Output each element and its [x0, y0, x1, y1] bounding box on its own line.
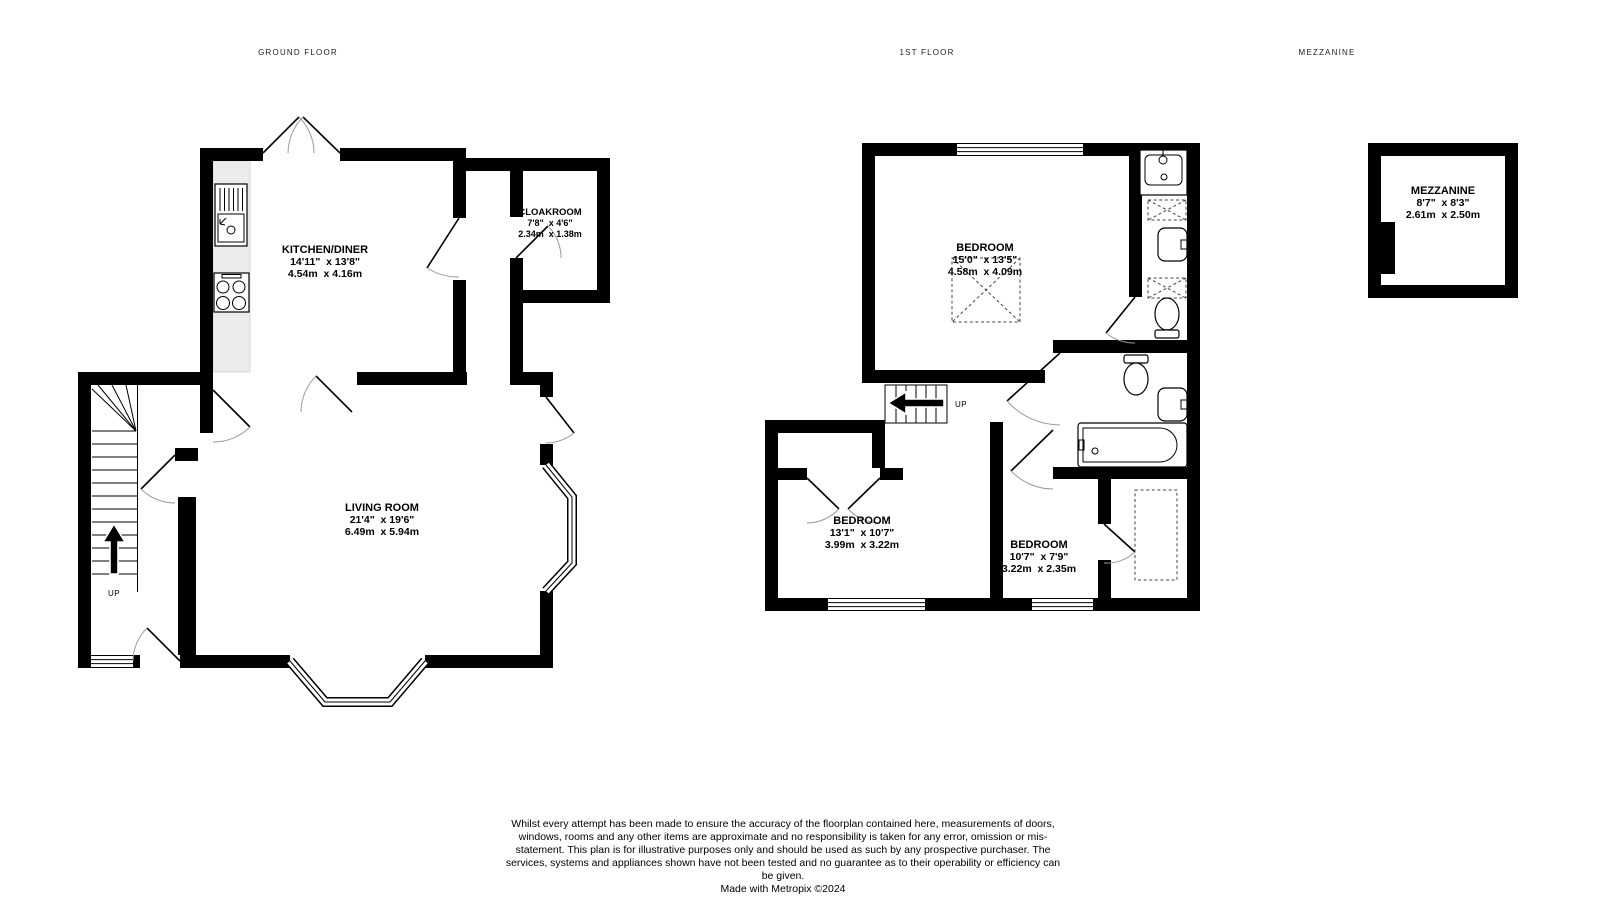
- floorplan-page: GROUND FLOOR: [0, 0, 1600, 912]
- bedroom2-name: BEDROOM: [833, 515, 890, 527]
- living-room-imperial: 21'4" x 19'6": [350, 514, 415, 526]
- kitchen-metric: 4.54m x 4.16m: [288, 268, 362, 280]
- kitchen-living-room-doors: [213, 376, 352, 442]
- kitchen-french-doors: [263, 117, 340, 153]
- bedroom3-metric: 3.22m x 2.35m: [1002, 563, 1076, 575]
- shower-room-door: [1106, 297, 1135, 343]
- living-room-metric: 6.49m x 5.94m: [345, 526, 419, 538]
- stairs-up-label: UP: [108, 589, 120, 598]
- bedroom1-label: BEDROOM 15'0" x 13'5" 4.58m x 4.09m: [948, 242, 1022, 278]
- kitchen-sink-icon: [215, 184, 247, 246]
- bathroom-door: [1007, 353, 1060, 425]
- cloakroom-name: CLOAKROOM: [518, 207, 581, 218]
- bedroom3-window: [1032, 598, 1093, 611]
- mezzanine-title: MEZZANINE: [1298, 48, 1355, 57]
- ground-floor-doors: [133, 117, 574, 661]
- bedroom1-window: [957, 143, 1083, 156]
- living-room-label: LIVING ROOM 21'4" x 19'6" 6.49m x 5.94m: [345, 502, 419, 538]
- bathroom-fixtures: [1078, 355, 1187, 467]
- bedroom1-name: BEDROOM: [956, 242, 1013, 254]
- kitchen-name: KITCHEN/DINER: [282, 244, 368, 256]
- stairs-up-arrow: [103, 524, 125, 574]
- bedroom1-imperial: 15'0" x 13'5": [953, 254, 1018, 266]
- bedroom2-window: [828, 598, 925, 611]
- cupboard-icon: [1148, 200, 1186, 220]
- living-room-bay-window-right: [546, 465, 572, 591]
- bedroom1-metric: 4.58m x 4.09m: [948, 266, 1022, 278]
- cloakroom-label: CLOAKROOM 7'8" x 4'6" 2.34m x 1.38m: [518, 207, 582, 239]
- mezzanine-metric: 2.61m x 2.50m: [1406, 209, 1480, 221]
- floorplan-drawing: GROUND FLOOR: [0, 0, 1600, 912]
- hob-icon: [214, 273, 249, 312]
- bedroom3-label: BEDROOM 10'7" x 7'9" 3.22m x 2.35m: [1002, 539, 1076, 575]
- living-room-stair-hall-door: [141, 455, 175, 503]
- mezzanine-name: MEZZANINE: [1411, 185, 1475, 197]
- shower-room-fixtures: [1140, 150, 1187, 338]
- sink-icon: [1140, 150, 1187, 195]
- ground-floor-title: GROUND FLOOR: [258, 48, 338, 57]
- cloakroom-imperial: 7'8" x 4'6": [527, 218, 572, 228]
- disclaimer: Whilst every attempt has been made to en…: [503, 818, 1063, 895]
- credit-line: Made with Metropix ©2024: [503, 883, 1063, 896]
- living-room-name: LIVING ROOM: [345, 502, 419, 514]
- stairs-up-label-first: UP: [955, 400, 967, 409]
- ground-floor-stairs: UP: [92, 385, 138, 598]
- mezzanine-imperial: 8'7" x 8'3": [1417, 197, 1470, 209]
- basin-icon: [1158, 388, 1187, 421]
- basin-icon: [1158, 228, 1187, 261]
- first-floor-title: 1ST FLOOR: [899, 48, 954, 57]
- living-room-bay-window-bottom: [290, 661, 425, 702]
- hall-window: [91, 655, 133, 668]
- kitchen-imperial: 14'11" x 13'8": [290, 256, 360, 268]
- kitchen-label: KITCHEN/DINER 14'11" x 13'8" 4.54m x 4.1…: [282, 244, 368, 280]
- toilet-icon: [1124, 355, 1148, 395]
- bedroom3-door: [1011, 430, 1053, 489]
- bath-icon: [1078, 423, 1187, 467]
- disclaimer-text: Whilst every attempt has been made to en…: [506, 818, 1060, 882]
- hall-living-room-door: [546, 397, 574, 443]
- bedroom3-imperial: 10'7" x 7'9": [1010, 551, 1069, 563]
- wardrobe-marker: [1135, 490, 1177, 580]
- bedroom2-label: BEDROOM 13'1" x 10'7" 3.99m x 3.22m: [825, 515, 899, 551]
- first-floor-stairs: UP: [885, 385, 967, 423]
- kitchen-hall-door: [427, 218, 459, 277]
- bedroom2-imperial: 13'1" x 10'7": [830, 527, 895, 539]
- bedroom2-metric: 3.99m x 3.22m: [825, 539, 899, 551]
- entrance-door: [133, 628, 180, 661]
- wardrobe-door: [1104, 524, 1135, 563]
- toilet-icon: [1155, 298, 1179, 338]
- mezzanine-label: MEZZANINE 8'7" x 8'3" 2.61m x 2.50m: [1406, 185, 1480, 221]
- cupboard-icon: [1148, 278, 1186, 298]
- bedroom3-name: BEDROOM: [1010, 539, 1067, 551]
- cloakroom-metric: 2.34m x 1.38m: [518, 229, 582, 239]
